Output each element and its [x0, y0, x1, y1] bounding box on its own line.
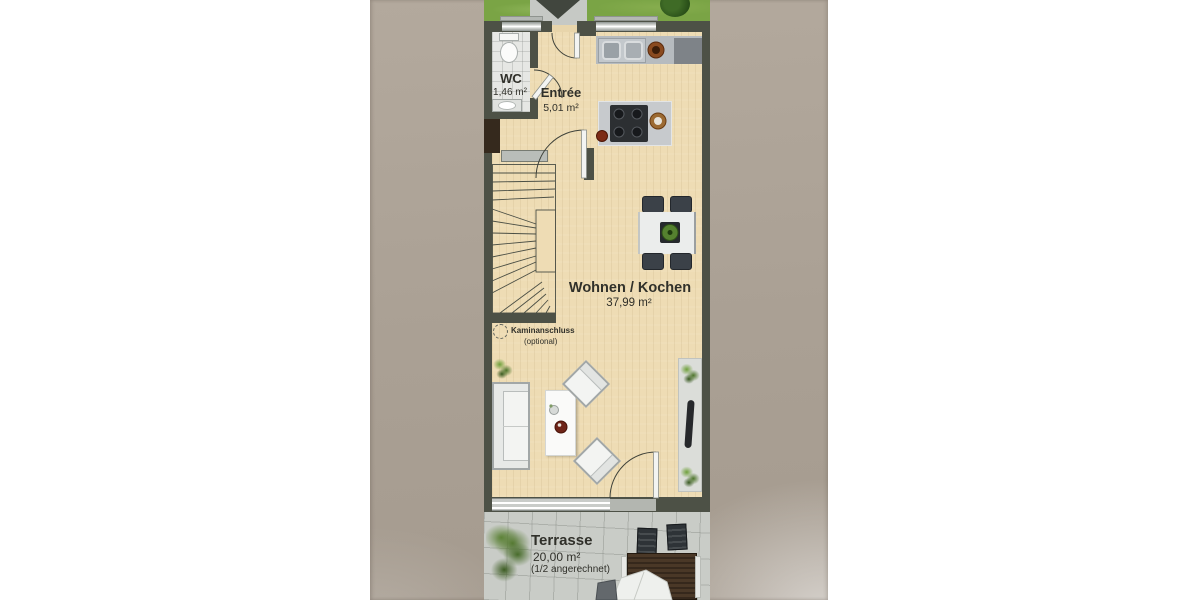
sofa — [492, 382, 530, 470]
toilet-icon — [500, 42, 518, 63]
kitchen-counter-appliance — [674, 38, 702, 64]
wc-wall-right — [530, 98, 538, 112]
wohnen-room-label: Wohnen / Kochen — [569, 281, 691, 296]
exterior-wall-left — [484, 21, 492, 512]
plant-icon — [679, 463, 701, 489]
scanned-floorplan-screenshot: WC 1,46 m² Entrée 5,01 m² Wohnen / Koche… — [0, 0, 1200, 600]
toilet-tank-icon — [499, 33, 519, 41]
outdoor-table-rail — [695, 556, 701, 598]
living-room-window — [492, 498, 610, 511]
sofa-armrest — [503, 384, 528, 392]
wc-wall-right — [530, 32, 538, 68]
stair-landing — [501, 150, 548, 162]
outdoor-chair — [637, 528, 658, 555]
wohnen-area-label: 37,99 m² — [606, 298, 651, 310]
terrasse-room-label: Terrasse — [531, 533, 592, 548]
stair-wall-bottom — [492, 313, 556, 323]
front-door-opening — [552, 21, 577, 32]
wall-niche — [484, 119, 500, 153]
sofa-armrest — [503, 460, 528, 468]
kitchen-sink-icon — [602, 41, 621, 60]
washbasin-bowl-icon — [498, 101, 516, 110]
exterior-wall-right — [702, 21, 710, 512]
sofa-cushion-split — [503, 426, 528, 427]
kamin-label-line2: (optional) — [524, 338, 557, 346]
entree-room-label: Entrée — [541, 86, 581, 99]
floor-plan: WC 1,46 m² Entrée 5,01 m² Wohnen / Koche… — [484, 0, 710, 600]
terrasse-note-label: (1/2 angerechnet) — [531, 565, 610, 575]
dining-chair — [670, 253, 692, 270]
wall-stub-kitchen — [577, 21, 596, 36]
dining-chair — [670, 196, 692, 213]
coffee-table — [545, 390, 576, 456]
outdoor-table — [627, 553, 697, 600]
cooktop-icon — [610, 105, 648, 142]
wc-window — [502, 22, 541, 31]
plant-icon — [492, 356, 514, 380]
wc-area-label: 1,46 m² — [493, 88, 527, 98]
terrace-door-threshold — [610, 499, 656, 511]
wall-stub-living — [584, 148, 594, 180]
kamin-label-line1: Kaminanschluss — [511, 327, 575, 335]
dining-chair — [642, 253, 664, 270]
bush-icon — [486, 518, 534, 588]
kamin-symbol-icon — [493, 324, 508, 339]
kitchen-window — [596, 22, 656, 31]
wc-room-label: WC — [500, 72, 522, 85]
terrasse-area-label: 20,00 m² — [533, 551, 580, 563]
dining-table — [638, 212, 696, 254]
dining-chair — [642, 196, 664, 213]
wc-wall-bottom — [484, 112, 538, 119]
photo-background: WC 1,46 m² Entrée 5,01 m² Wohnen / Koche… — [370, 0, 828, 600]
plant-icon — [679, 361, 701, 385]
entree-area-label: 5,01 m² — [543, 103, 579, 114]
kitchen-sink-icon — [624, 41, 643, 60]
outdoor-chair — [666, 523, 687, 550]
